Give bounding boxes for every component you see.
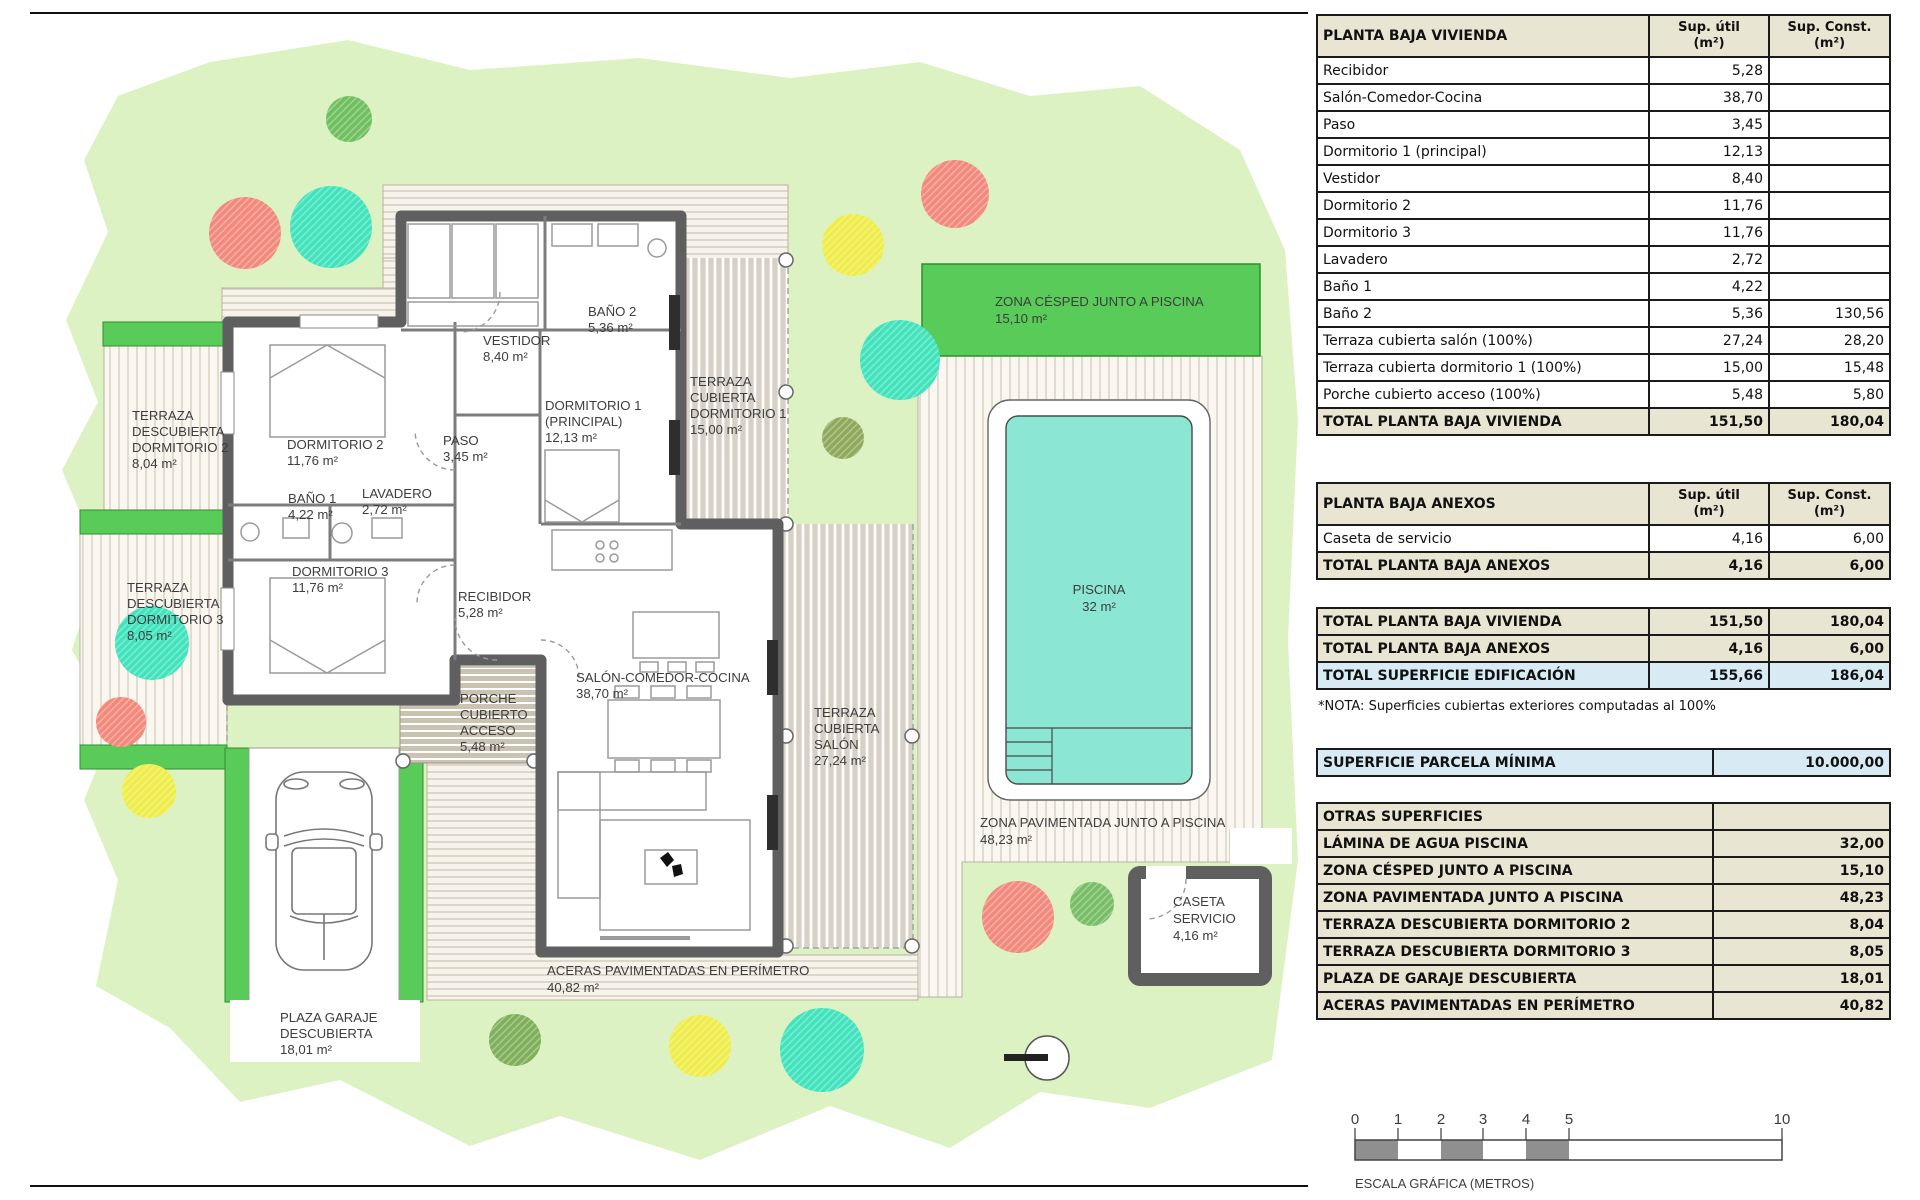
- table-row: Dormitorio 1 (principal)12,13: [1317, 138, 1890, 165]
- svg-text:(PRINCIPAL): (PRINCIPAL): [545, 414, 622, 429]
- table-row: Vestidor8,40: [1317, 165, 1890, 192]
- svg-text:8,40 m²: 8,40 m²: [483, 349, 528, 364]
- svg-text:11,76 m²: 11,76 m²: [287, 453, 339, 468]
- table-row: TERRAZA DESCUBIERTA DORMITORIO 28,04: [1317, 911, 1890, 938]
- table-note: *NOTA: Superficies cubiertas exteriores …: [1318, 699, 1716, 714]
- table-planta-baja-anexos: PLANTA BAJA ANEXOS Sup. útil (m²) Sup. C…: [1316, 482, 1891, 580]
- row-value: [1769, 111, 1890, 138]
- row-label: TOTAL PLANTA BAJA ANEXOS: [1317, 635, 1649, 662]
- row-value: 8,04: [1713, 911, 1890, 938]
- svg-text:TERRAZA: TERRAZA: [690, 374, 752, 389]
- row-label: Dormitorio 3: [1317, 219, 1649, 246]
- row-label: Paso: [1317, 111, 1649, 138]
- row-value: 18,01: [1713, 965, 1890, 992]
- svg-text:PASO: PASO: [443, 433, 479, 448]
- row-value: 6,00: [1769, 552, 1890, 579]
- row-value: 40,82: [1713, 992, 1890, 1019]
- svg-text:CUBIERTA: CUBIERTA: [690, 390, 756, 405]
- page: TERRAZA DESCUBIERTA DORMITORIO 2 8,04 m²…: [0, 0, 1920, 1200]
- row-value: 151,50: [1649, 608, 1769, 635]
- table-row: TOTAL PLANTA BAJA VIVIENDA151,50180,04: [1317, 608, 1890, 635]
- svg-text:1: 1: [1394, 1111, 1402, 1128]
- svg-text:SERVICIO: SERVICIO: [1173, 911, 1236, 926]
- row-value: 8,05: [1713, 938, 1890, 965]
- row-value: 15,00: [1649, 354, 1769, 381]
- row-label: Lavadero: [1317, 246, 1649, 273]
- row-label: TOTAL PLANTA BAJA VIVIENDA: [1317, 608, 1649, 635]
- row-label: Caseta de servicio: [1317, 525, 1649, 552]
- table-otras-superficies: OTRAS SUPERFICIES LÁMINA DE AGUA PISCINA…: [1316, 802, 1891, 1020]
- grass-zone-pool: [922, 264, 1260, 356]
- table-row: Paso3,45: [1317, 111, 1890, 138]
- svg-text:LAVADERO: LAVADERO: [362, 486, 432, 501]
- row-value: 28,20: [1769, 327, 1890, 354]
- row-value: 180,04: [1769, 608, 1890, 635]
- svg-text:15,10 m²: 15,10 m²: [995, 311, 1048, 326]
- row-value: 10.000,00: [1713, 749, 1890, 776]
- svg-text:DORMITORIO 1: DORMITORIO 1: [690, 406, 786, 421]
- table-planta-baja-vivienda: PLANTA BAJA VIVIENDA Sup. útil (m²) Sup.…: [1316, 14, 1891, 436]
- row-label: PLAZA DE GARAJE DESCUBIERTA: [1317, 965, 1713, 992]
- row-value: 27,24: [1649, 327, 1769, 354]
- table-row: Terraza cubierta salón (100%)27,2428,20: [1317, 327, 1890, 354]
- table-totales: TOTAL PLANTA BAJA VIVIENDA151,50180,04TO…: [1316, 607, 1891, 690]
- row-value: [1769, 138, 1890, 165]
- row-label: Salón-Comedor-Cocina: [1317, 84, 1649, 111]
- svg-text:VESTIDOR: VESTIDOR: [483, 333, 550, 348]
- svg-text:4,16 m²: 4,16 m²: [1173, 928, 1218, 943]
- svg-text:TERRAZA: TERRAZA: [132, 408, 194, 423]
- row-value: 6,00: [1769, 525, 1890, 552]
- table-header-row: PLANTA BAJA ANEXOS Sup. útil (m²) Sup. C…: [1317, 483, 1890, 525]
- empty-header-cell: [1713, 803, 1890, 830]
- row-label: Baño 1: [1317, 273, 1649, 300]
- row-value: 2,72: [1649, 246, 1769, 273]
- row-label: ZONA PAVIMENTADA JUNTO A PISCINA: [1317, 884, 1713, 911]
- row-label: SUPERFICIE PARCELA MÍNIMA: [1317, 749, 1713, 776]
- svg-text:2,72 m²: 2,72 m²: [362, 502, 407, 517]
- site-plan: TERRAZA DESCUBIERTA DORMITORIO 2 8,04 m²…: [0, 0, 1310, 1200]
- svg-text:DESCUBIERTA: DESCUBIERTA: [132, 424, 225, 439]
- scale-tick-marks: [1355, 1128, 1782, 1140]
- col-header-util: Sup. útil (m²): [1649, 483, 1769, 525]
- table-row: ACERAS PAVIMENTADAS EN PERÍMETRO40,82: [1317, 992, 1890, 1019]
- row-value: 5,80: [1769, 381, 1890, 408]
- svg-text:2: 2: [1437, 1111, 1445, 1128]
- row-value: [1769, 246, 1890, 273]
- svg-text:8,05 m²: 8,05 m²: [127, 628, 172, 643]
- svg-text:DORMITORIO 2: DORMITORIO 2: [287, 437, 383, 452]
- row-value: 8,40: [1649, 165, 1769, 192]
- svg-text:5,28 m²: 5,28 m²: [458, 605, 503, 620]
- svg-text:18,01 m²: 18,01 m²: [280, 1042, 333, 1057]
- table-row: TOTAL SUPERFICIE EDIFICACIÓN155,66186,04: [1317, 662, 1890, 689]
- svg-text:ZONA CÉSPED JUNTO A PISCINA: ZONA CÉSPED JUNTO A PISCINA: [995, 294, 1204, 309]
- row-label: Dormitorio 2: [1317, 192, 1649, 219]
- svg-text:ZONA PAVIMENTADA JUNTO A PISCI: ZONA PAVIMENTADA JUNTO A PISCINA: [980, 815, 1225, 830]
- svg-text:12,13 m²: 12,13 m²: [545, 430, 598, 445]
- table-row: Terraza cubierta dormitorio 1 (100%)15,0…: [1317, 354, 1890, 381]
- row-label: TOTAL PLANTA BAJA VIVIENDA: [1317, 408, 1649, 435]
- table-row: Recibidor5,28: [1317, 57, 1890, 84]
- row-value: 4,16: [1649, 525, 1769, 552]
- row-value: [1769, 84, 1890, 111]
- table-row: Caseta de servicio4,166,00: [1317, 525, 1890, 552]
- row-value: 130,56: [1769, 300, 1890, 327]
- row-value: 151,50: [1649, 408, 1769, 435]
- row-value: 4,22: [1649, 273, 1769, 300]
- row-value: 11,76: [1649, 192, 1769, 219]
- row-value: 15,10: [1713, 857, 1890, 884]
- row-value: [1769, 192, 1890, 219]
- row-value: [1769, 219, 1890, 246]
- row-value: 5,28: [1649, 57, 1769, 84]
- row-value: 4,16: [1649, 552, 1769, 579]
- svg-text:CUBIERTA: CUBIERTA: [814, 721, 880, 736]
- svg-text:8,04 m²: 8,04 m²: [132, 456, 177, 471]
- svg-text:15,00 m²: 15,00 m²: [690, 422, 743, 437]
- svg-text:27,24 m²: 27,24 m²: [814, 753, 867, 768]
- svg-text:PISCINA: PISCINA: [1073, 582, 1126, 597]
- table-row: Lavadero2,72: [1317, 246, 1890, 273]
- table-row: Salón-Comedor-Cocina38,70: [1317, 84, 1890, 111]
- table-row: TOTAL PLANTA BAJA ANEXOS4,166,00: [1317, 635, 1890, 662]
- row-value: 15,48: [1769, 354, 1890, 381]
- car: [266, 772, 382, 970]
- svg-text:38,70 m²: 38,70 m²: [576, 686, 629, 701]
- service-hut: [1128, 866, 1272, 986]
- row-value: 155,66: [1649, 662, 1769, 689]
- table-header-row: OTRAS SUPERFICIES: [1317, 803, 1890, 830]
- row-label: Porche cubierto acceso (100%): [1317, 381, 1649, 408]
- table-row: LÁMINA DE AGUA PISCINA32,00: [1317, 830, 1890, 857]
- svg-text:BAÑO 2: BAÑO 2: [588, 304, 636, 319]
- svg-text:48,23 m²: 48,23 m²: [980, 832, 1033, 847]
- scale-ticks: 0 1 2 3 4 5 10: [1351, 1111, 1791, 1128]
- svg-text:5,48 m²: 5,48 m²: [460, 739, 505, 754]
- row-value: 38,70: [1649, 84, 1769, 111]
- row-value: 180,04: [1769, 408, 1890, 435]
- table-parcela-minima: SUPERFICIE PARCELA MÍNIMA10.000,00: [1316, 748, 1891, 777]
- row-value: [1769, 273, 1890, 300]
- table-title: PLANTA BAJA VIVIENDA: [1317, 15, 1649, 57]
- row-value: 4,16: [1649, 635, 1769, 662]
- col-header-util: Sup. útil (m²): [1649, 15, 1769, 57]
- svg-text:0: 0: [1351, 1111, 1359, 1128]
- table-title: PLANTA BAJA ANEXOS: [1317, 483, 1649, 525]
- svg-text:TERRAZA: TERRAZA: [814, 705, 876, 720]
- col-header-const: Sup. Const. (m²): [1769, 483, 1890, 525]
- svg-text:DORMITORIO 3: DORMITORIO 3: [127, 612, 223, 627]
- row-label: Dormitorio 1 (principal): [1317, 138, 1649, 165]
- table-row: Porche cubierto acceso (100%)5,485,80: [1317, 381, 1890, 408]
- svg-text:ACERAS PAVIMENTADAS EN PERÍMET: ACERAS PAVIMENTADAS EN PERÍMETRO: [547, 963, 809, 978]
- svg-text:5: 5: [1565, 1111, 1573, 1128]
- table-row: SUPERFICIE PARCELA MÍNIMA10.000,00: [1317, 749, 1890, 776]
- table-header-row: PLANTA BAJA VIVIENDA Sup. útil (m²) Sup.…: [1317, 15, 1890, 57]
- row-value: 48,23: [1713, 884, 1890, 911]
- row-label: ACERAS PAVIMENTADAS EN PERÍMETRO: [1317, 992, 1713, 1019]
- svg-text:RECIBIDOR: RECIBIDOR: [458, 589, 531, 604]
- svg-text:4: 4: [1522, 1111, 1530, 1128]
- table-row: TOTAL PLANTA BAJA VIVIENDA151,50180,04: [1317, 408, 1890, 435]
- svg-text:SALÓN: SALÓN: [814, 737, 859, 752]
- svg-text:CUBIERTO: CUBIERTO: [460, 707, 528, 722]
- svg-text:DORMITORIO 2: DORMITORIO 2: [132, 440, 228, 455]
- table-row: PLAZA DE GARAJE DESCUBIERTA18,01: [1317, 965, 1890, 992]
- svg-text:BAÑO 1: BAÑO 1: [288, 491, 336, 506]
- row-label: Baño 2: [1317, 300, 1649, 327]
- row-label: Terraza cubierta salón (100%): [1317, 327, 1649, 354]
- row-label: Vestidor: [1317, 165, 1649, 192]
- table-row: TERRAZA DESCUBIERTA DORMITORIO 38,05: [1317, 938, 1890, 965]
- table-title: OTRAS SUPERFICIES: [1317, 803, 1713, 830]
- row-label: ZONA CÉSPED JUNTO A PISCINA: [1317, 857, 1713, 884]
- table-row: Baño 25,36130,56: [1317, 300, 1890, 327]
- row-value: [1769, 165, 1890, 192]
- row-label: TOTAL PLANTA BAJA ANEXOS: [1317, 552, 1649, 579]
- row-label: TOTAL SUPERFICIE EDIFICACIÓN: [1317, 662, 1649, 689]
- table-row: Baño 14,22: [1317, 273, 1890, 300]
- table-row: TOTAL PLANTA BAJA ANEXOS4,166,00: [1317, 552, 1890, 579]
- row-value: 186,04: [1769, 662, 1890, 689]
- svg-text:PORCHE: PORCHE: [460, 691, 517, 706]
- table-row: Dormitorio 211,76: [1317, 192, 1890, 219]
- row-value: 32,00: [1713, 830, 1890, 857]
- svg-text:CASETA: CASETA: [1173, 894, 1225, 909]
- row-value: 6,00: [1769, 635, 1890, 662]
- svg-text:10: 10: [1774, 1111, 1791, 1128]
- row-value: 3,45: [1649, 111, 1769, 138]
- svg-text:5,36 m²: 5,36 m²: [588, 320, 633, 335]
- svg-text:4,22 m²: 4,22 m²: [288, 507, 333, 522]
- svg-text:ACCESO: ACCESO: [460, 723, 516, 738]
- svg-text:40,82 m²: 40,82 m²: [547, 980, 600, 995]
- svg-text:DORMITORIO 1: DORMITORIO 1: [545, 398, 641, 413]
- row-label: TERRAZA DESCUBIERTA DORMITORIO 3: [1317, 938, 1713, 965]
- svg-text:SALÓN-COMEDOR-COCINA: SALÓN-COMEDOR-COCINA: [576, 670, 750, 685]
- scale-bar: 0 1 2 3 4 5 10 ESCALA GRÁFICA (METROS): [1345, 1106, 1825, 1200]
- svg-text:32 m²: 32 m²: [1082, 599, 1116, 614]
- scale-caption: ESCALA GRÁFICA (METROS): [1355, 1176, 1534, 1191]
- svg-text:3,45 m²: 3,45 m²: [443, 449, 488, 464]
- svg-text:DESCUBIERTA: DESCUBIERTA: [280, 1026, 373, 1041]
- svg-text:TERRAZA: TERRAZA: [127, 580, 189, 595]
- row-label: LÁMINA DE AGUA PISCINA: [1317, 830, 1713, 857]
- row-label: TERRAZA DESCUBIERTA DORMITORIO 2: [1317, 911, 1713, 938]
- table-row: ZONA CÉSPED JUNTO A PISCINA15,10: [1317, 857, 1890, 884]
- row-value: [1769, 57, 1890, 84]
- svg-text:DESCUBIERTA: DESCUBIERTA: [127, 596, 220, 611]
- row-label: Terraza cubierta dormitorio 1 (100%): [1317, 354, 1649, 381]
- row-value: 12,13: [1649, 138, 1769, 165]
- svg-text:PLAZA GARAJE: PLAZA GARAJE: [280, 1010, 378, 1025]
- col-header-const: Sup. Const. (m²): [1769, 15, 1890, 57]
- svg-text:3: 3: [1479, 1111, 1487, 1128]
- row-value: 5,36: [1649, 300, 1769, 327]
- svg-text:DORMITORIO 3: DORMITORIO 3: [292, 564, 388, 579]
- row-value: 11,76: [1649, 219, 1769, 246]
- row-value: 5,48: [1649, 381, 1769, 408]
- svg-text:11,76 m²: 11,76 m²: [292, 580, 344, 595]
- row-label: Recibidor: [1317, 57, 1649, 84]
- table-row: ZONA PAVIMENTADA JUNTO A PISCINA48,23: [1317, 884, 1890, 911]
- table-row: Dormitorio 311,76: [1317, 219, 1890, 246]
